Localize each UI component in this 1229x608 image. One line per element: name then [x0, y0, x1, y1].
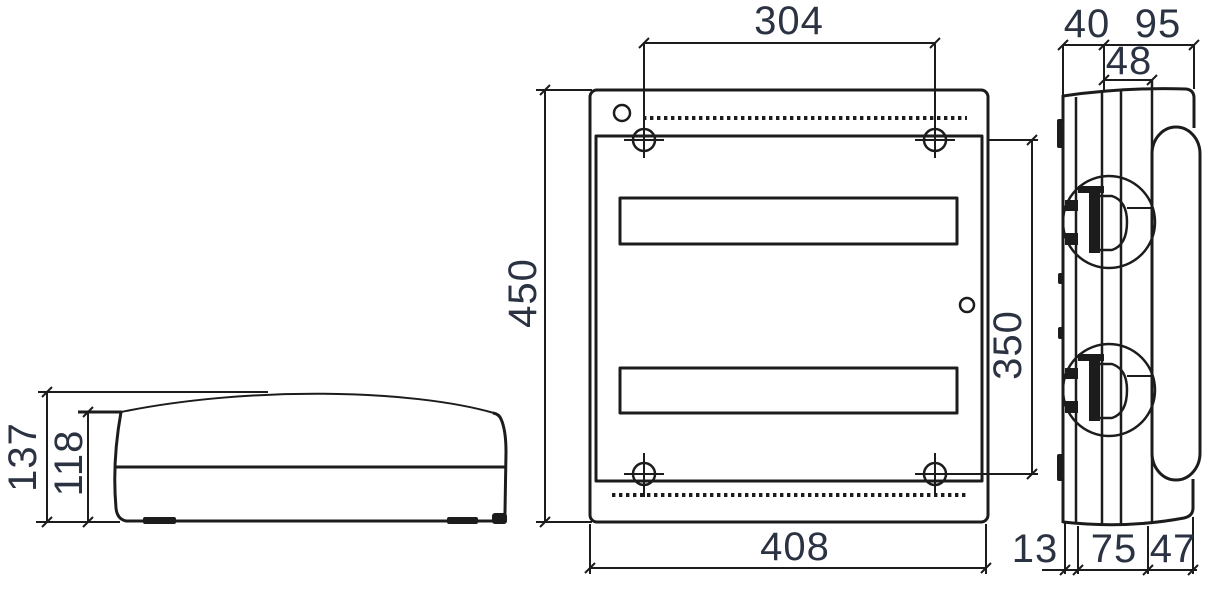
side-view-internal-lines: [1076, 80, 1152, 525]
side-view-outline-top: [1063, 89, 1194, 523]
drawing-linework: [0, 0, 1229, 608]
top-view-foot: [143, 517, 176, 524]
front-view-outer-box: [590, 90, 988, 522]
dim-label-47: 47: [1150, 529, 1197, 569]
back-tab: [1057, 119, 1063, 148]
side-view-door-profile: [1152, 127, 1200, 480]
door-lock-hole: [960, 298, 974, 312]
dim-label-304: 304: [754, 1, 824, 41]
top-view-lid-curve: [121, 394, 494, 413]
module-slot-upper: [620, 198, 957, 244]
technical-drawing-canvas: 304 450 350 408 40 95 48 13 75 47 137 11…: [0, 0, 1229, 608]
mounting-hole-bottom-left: [624, 453, 664, 497]
top-band-hole: [614, 105, 630, 121]
module-slot-lower: [620, 368, 957, 413]
dim-label-450: 450: [503, 258, 543, 328]
front-view-door: [596, 136, 982, 481]
dim-label-350: 350: [988, 310, 1028, 380]
dim-label-137: 137: [3, 422, 43, 492]
top-view: [36, 392, 507, 524]
dim-label-408: 408: [760, 527, 830, 567]
dim-label-40: 40: [1064, 4, 1111, 44]
top-view-foot: [492, 513, 507, 524]
dim-label-118: 118: [49, 430, 89, 497]
back-tab: [1057, 454, 1063, 481]
back-tab: [1058, 327, 1063, 339]
dim-label-75: 75: [1091, 529, 1138, 569]
front-view: [536, 43, 1038, 574]
back-tab: [1058, 273, 1063, 284]
side-view-outline-bottom: [1063, 479, 1193, 525]
dim-label-48: 48: [1106, 41, 1153, 81]
top-view-foot: [447, 517, 478, 524]
dim-label-13: 13: [1012, 529, 1059, 569]
side-view: [1042, 45, 1200, 574]
dim-label-95: 95: [1135, 4, 1182, 44]
